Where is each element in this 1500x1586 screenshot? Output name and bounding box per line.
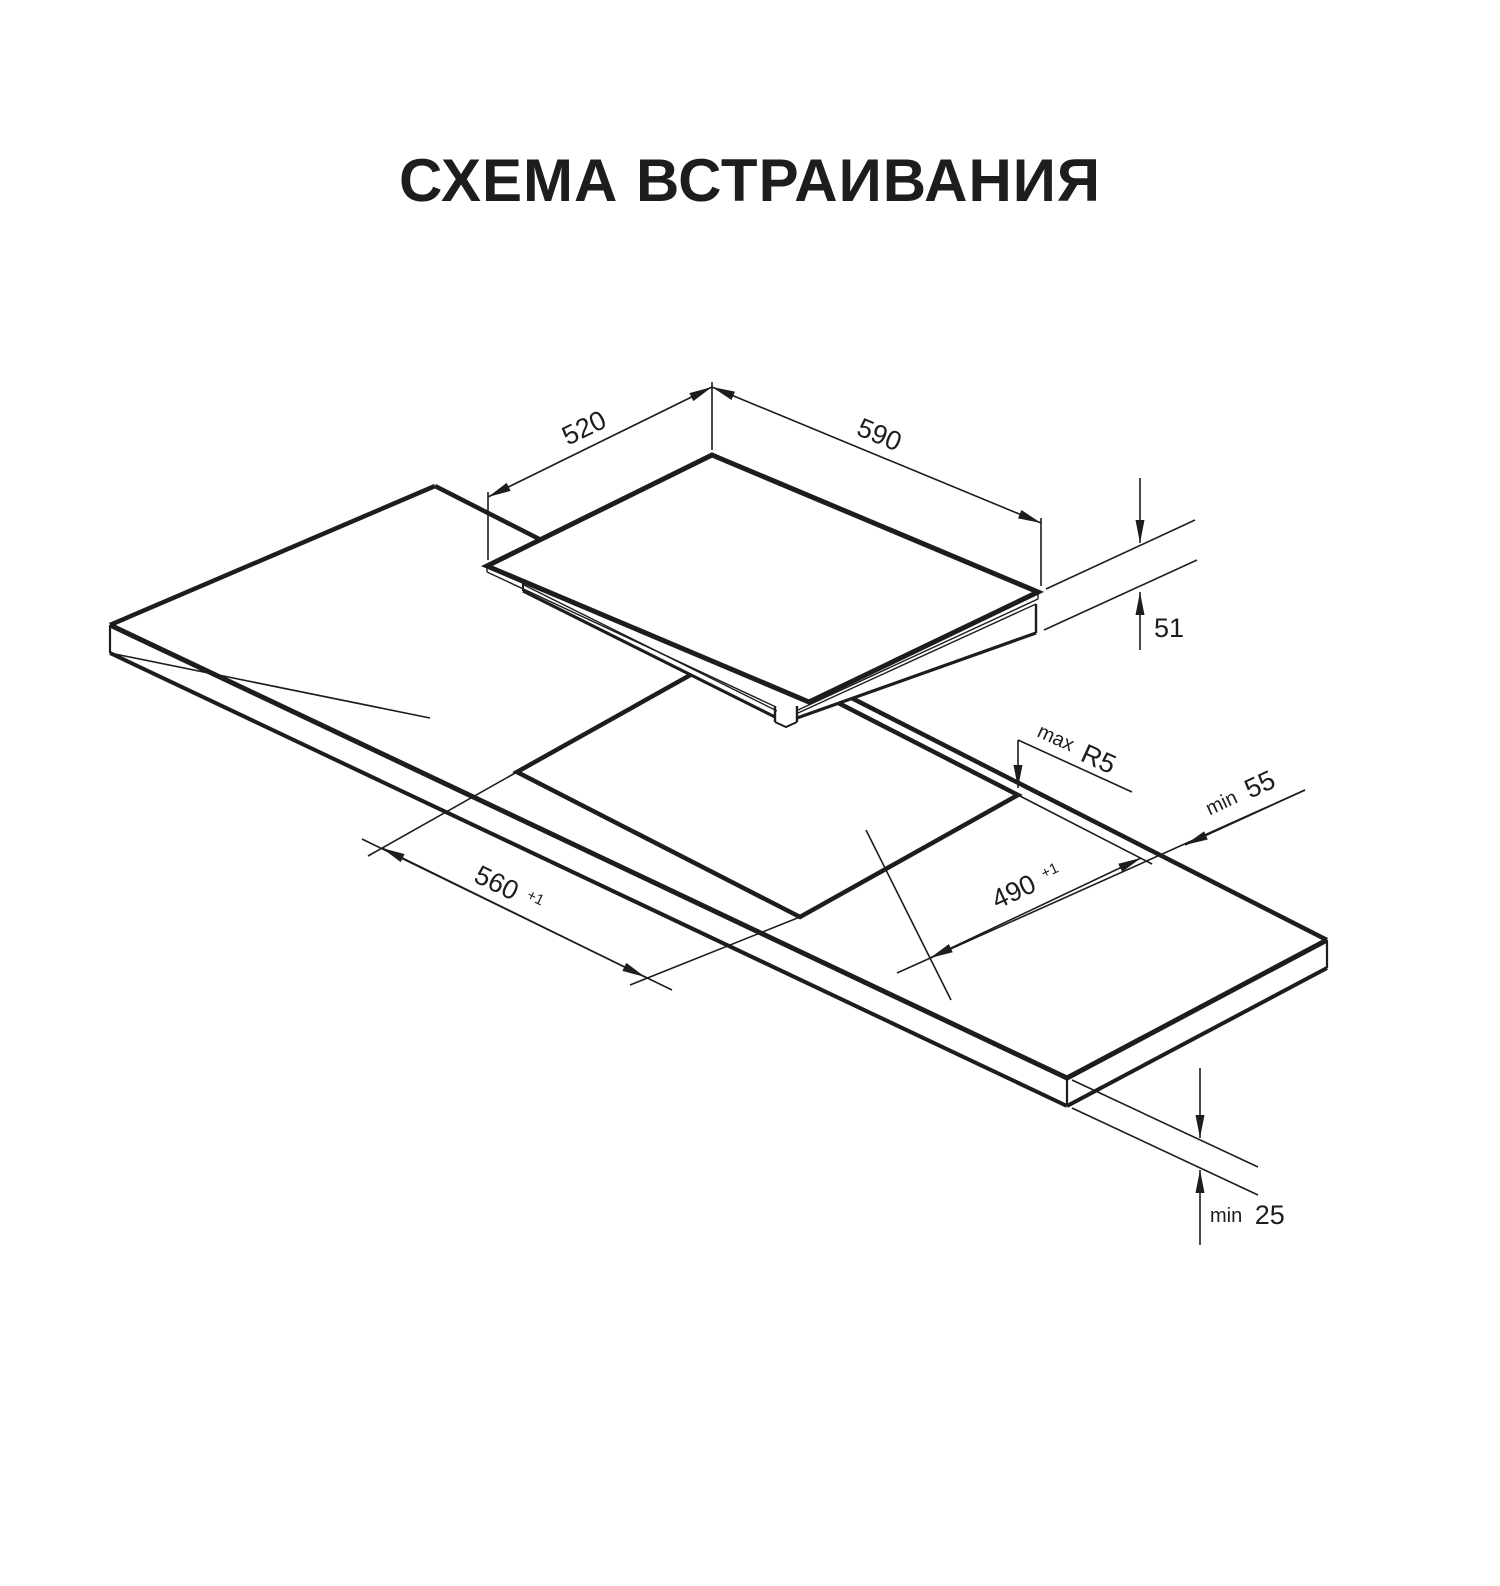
page-title: СХЕМА ВСТРАИВАНИЯ	[0, 146, 1500, 215]
label-r5: R5	[1077, 738, 1121, 780]
label-51: 51	[1154, 613, 1184, 643]
label-490: 490 +1	[987, 857, 1065, 915]
label-490-value: 490	[987, 869, 1041, 915]
label-min-25: min 25	[1210, 1200, 1285, 1230]
label-max-r5: max R5	[1032, 718, 1121, 780]
page: СХЕМА ВСТРАИВАНИЯ	[0, 0, 1500, 1586]
label-590: 590	[853, 412, 906, 457]
label-490-tolerance: +1	[1039, 860, 1062, 883]
label-55: 55	[1240, 764, 1280, 804]
label-520: 520	[557, 405, 611, 452]
label-560-value: 560	[470, 860, 524, 907]
label-min-55: min 55	[1200, 764, 1280, 822]
installation-diagram: 520 590 51 max R5 min 55 560 +1 490 +1 m…	[0, 0, 1500, 1586]
label-25: 25	[1255, 1200, 1285, 1230]
hob-drawing	[487, 455, 1038, 727]
label-560-tolerance: +1	[524, 887, 547, 910]
label-min25-prefix: min	[1210, 1205, 1242, 1227]
label-min55-prefix: min	[1202, 787, 1241, 821]
